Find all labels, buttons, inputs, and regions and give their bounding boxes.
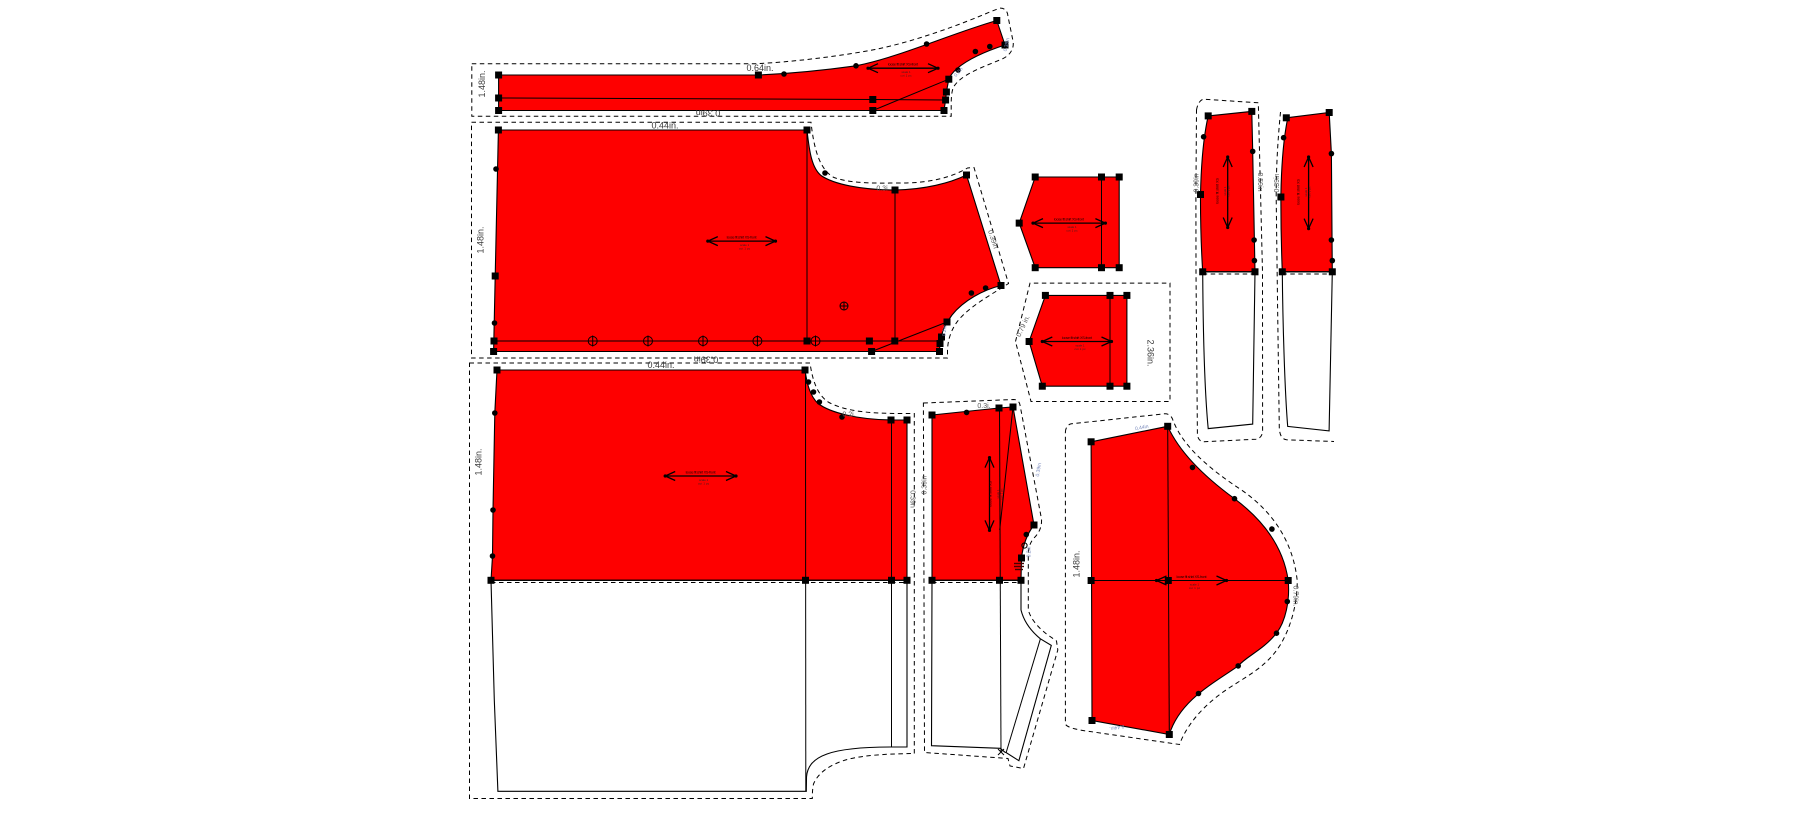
svg-text:0.44in.: 0.44in.	[651, 121, 678, 131]
svg-text:loose fit shirt XS: loose fit shirt XS	[1216, 178, 1220, 204]
svg-text:loose fit shirt XS-front: loose fit shirt XS-front	[727, 236, 758, 240]
svg-text:cut 1 pc: cut 1 pc	[1000, 488, 1004, 500]
svg-text:0.59in: 0.59in	[1256, 172, 1263, 191]
svg-text:2.36in.: 2.36in.	[1146, 339, 1156, 366]
svg-text:loose fit shirt XS-front: loose fit shirt XS-front	[1054, 218, 1085, 222]
svg-text:scale 1: scale 1	[996, 489, 1000, 499]
svg-text:scale 1: scale 1	[902, 70, 912, 74]
svg-text:scale 1: scale 1	[699, 478, 709, 482]
svg-text:1.48in.: 1.48in.	[474, 448, 484, 475]
svg-text:loose fit shirt XS: loose fit shirt XS	[989, 481, 993, 507]
svg-text:1.48in.: 1.48in.	[476, 226, 486, 253]
svg-text:0.39in: 0.39in	[922, 475, 929, 494]
svg-text:0.39in: 0.39in	[1274, 173, 1281, 192]
svg-text:scale 1: scale 1	[1223, 186, 1227, 196]
svg-text:scale 1: scale 1	[1068, 225, 1078, 229]
svg-text:cut 1 pc: cut 1 pc	[1189, 586, 1201, 590]
svg-text:loose fit shirt XS-front: loose fit shirt XS-front	[1177, 575, 1208, 579]
svg-text:cut 1 pc: cut 1 pc	[1308, 186, 1312, 198]
svg-text:0.3i: 0.3i	[876, 186, 888, 193]
svg-text:1.48in.: 1.48in.	[1072, 550, 1082, 577]
svg-text:scale 1: scale 1	[740, 243, 750, 247]
svg-text:cut 1 pc: cut 1 pc	[739, 247, 751, 251]
svg-text:0.44in.: 0.44in.	[647, 360, 674, 370]
svg-text:loose fit shirt XS-front: loose fit shirt XS-front	[1062, 336, 1093, 340]
svg-text:0.2in: 0.2in	[942, 325, 949, 337]
svg-text:0.3i.: 0.3i.	[977, 403, 990, 410]
svg-text:0.39in: 0.39in	[1194, 173, 1201, 192]
svg-text:scale 1: scale 1	[1190, 583, 1200, 587]
svg-text:scale 1: scale 1	[1076, 344, 1086, 348]
svg-text:0.39n: 0.39n	[909, 490, 916, 508]
svg-text:scale 1: scale 1	[1304, 187, 1308, 197]
svg-text:0.2i.: 0.2i.	[842, 412, 855, 419]
svg-text:loose fit shirt XS-front: loose fit shirt XS-front	[686, 471, 717, 475]
svg-text:cut 1 pc: cut 1 pc	[1067, 229, 1079, 233]
svg-text:0.64in.: 0.64in.	[746, 63, 773, 73]
svg-text:0.79in.: 0.79in.	[1292, 585, 1299, 606]
svg-text:loose fit shirt XS-front: loose fit shirt XS-front	[888, 63, 919, 67]
svg-text:cut 1 pc: cut 1 pc	[698, 482, 710, 486]
svg-text:cut 1 pc: cut 1 pc	[1227, 185, 1231, 197]
svg-text:cut 1 pc: cut 1 pc	[1075, 347, 1087, 351]
svg-text:cut 1 pc: cut 1 pc	[901, 74, 913, 78]
svg-text:1.48in.: 1.48in.	[477, 70, 487, 97]
svg-text:loose fit shirt XS: loose fit shirt XS	[1297, 179, 1301, 205]
svg-text:0.39in: 0.39in	[696, 108, 721, 118]
svg-text:0.2in: 0.2in	[1027, 546, 1033, 557]
